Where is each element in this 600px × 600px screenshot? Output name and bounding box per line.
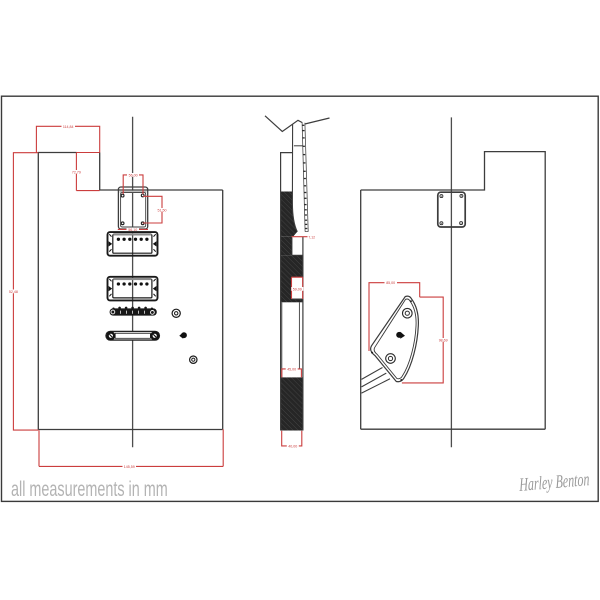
svg-text:59,09: 59,09: [293, 287, 302, 291]
svg-text:85,00: 85,00: [386, 281, 395, 285]
svg-text:51,50: 51,50: [158, 208, 167, 212]
svg-text:98,69: 98,69: [439, 338, 448, 342]
svg-text:145,59: 145,59: [124, 465, 135, 469]
svg-text:114,84: 114,84: [63, 125, 74, 129]
svg-text:7,12: 7,12: [308, 235, 315, 239]
svg-text:52,48: 52,48: [9, 290, 18, 294]
svg-text:72,79: 72,79: [72, 170, 81, 174]
svg-text:40,00: 40,00: [288, 445, 297, 449]
svg-text:56,00: 56,00: [129, 173, 138, 177]
svg-text:45,00: 45,00: [287, 368, 296, 372]
